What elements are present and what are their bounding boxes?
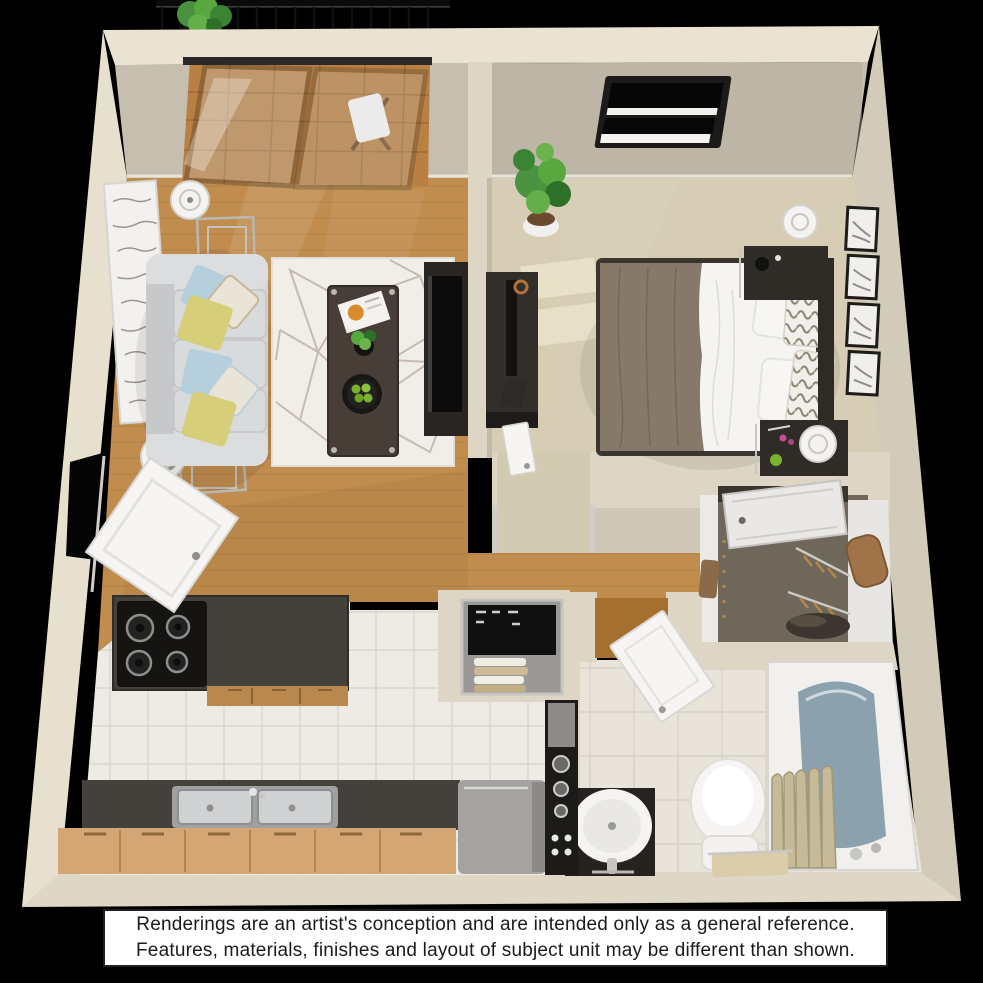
tulip-2 xyxy=(788,439,794,445)
window-blind-bottom xyxy=(600,134,710,143)
glass-panel-right xyxy=(296,69,426,188)
laundry-towels xyxy=(474,658,528,692)
shelf-column xyxy=(545,700,578,875)
tub-handle xyxy=(871,843,881,853)
frame-3 xyxy=(847,303,879,347)
cup xyxy=(770,454,782,466)
window-pane-top xyxy=(608,83,724,108)
frame-1 xyxy=(846,207,878,251)
closet-bag-left xyxy=(698,559,719,598)
disclaimer-line-1: Renderings are an artist's conception an… xyxy=(136,912,854,938)
shoe-pile-top xyxy=(790,615,826,627)
window-blind-top xyxy=(607,108,718,115)
tv-console xyxy=(424,262,468,436)
glass-1 xyxy=(553,756,569,772)
frame-2 xyxy=(846,255,878,299)
doorway-jamb-left xyxy=(492,505,497,553)
entry-door-knob xyxy=(192,552,200,560)
frame-4 xyxy=(847,352,879,396)
disclaimer-box: Renderings are an artist's conception an… xyxy=(103,909,888,967)
cabinet-face xyxy=(58,828,456,874)
dresser-with-tv xyxy=(486,272,538,428)
kitchen-island xyxy=(113,596,348,706)
glass-2 xyxy=(554,782,568,796)
television xyxy=(428,276,462,412)
bottom-wall xyxy=(22,872,961,907)
tulip-1 xyxy=(780,435,787,442)
bottom-counter xyxy=(58,780,460,874)
laundry-nook xyxy=(438,590,570,702)
doorway-jamb-right xyxy=(590,505,595,553)
tub-faucet xyxy=(850,848,862,860)
coffee-table xyxy=(328,286,398,456)
stove xyxy=(117,601,207,687)
door-track xyxy=(183,57,432,65)
bedroom-door-knob xyxy=(524,463,530,469)
lamp-bottom xyxy=(800,426,836,462)
double-sink xyxy=(172,786,338,828)
bedroom-window xyxy=(594,76,731,148)
refrigerator xyxy=(458,780,546,874)
floor-plan-image: Renderings are an artist's conception an… xyxy=(0,0,983,983)
bath-towel xyxy=(708,851,792,878)
lamp-top xyxy=(783,205,817,239)
vanity-sink xyxy=(565,788,655,876)
window-pane-bottom xyxy=(603,118,716,134)
bed-blanket xyxy=(600,263,704,451)
bedroom-tv xyxy=(506,280,517,376)
fruit-bowl xyxy=(342,374,382,414)
disclaimer-line-2: Features, materials, finishes and layout… xyxy=(136,938,855,964)
nightstand-bottom xyxy=(756,420,848,476)
glass-3 xyxy=(555,805,567,817)
balcony-sliding-door xyxy=(182,57,432,188)
